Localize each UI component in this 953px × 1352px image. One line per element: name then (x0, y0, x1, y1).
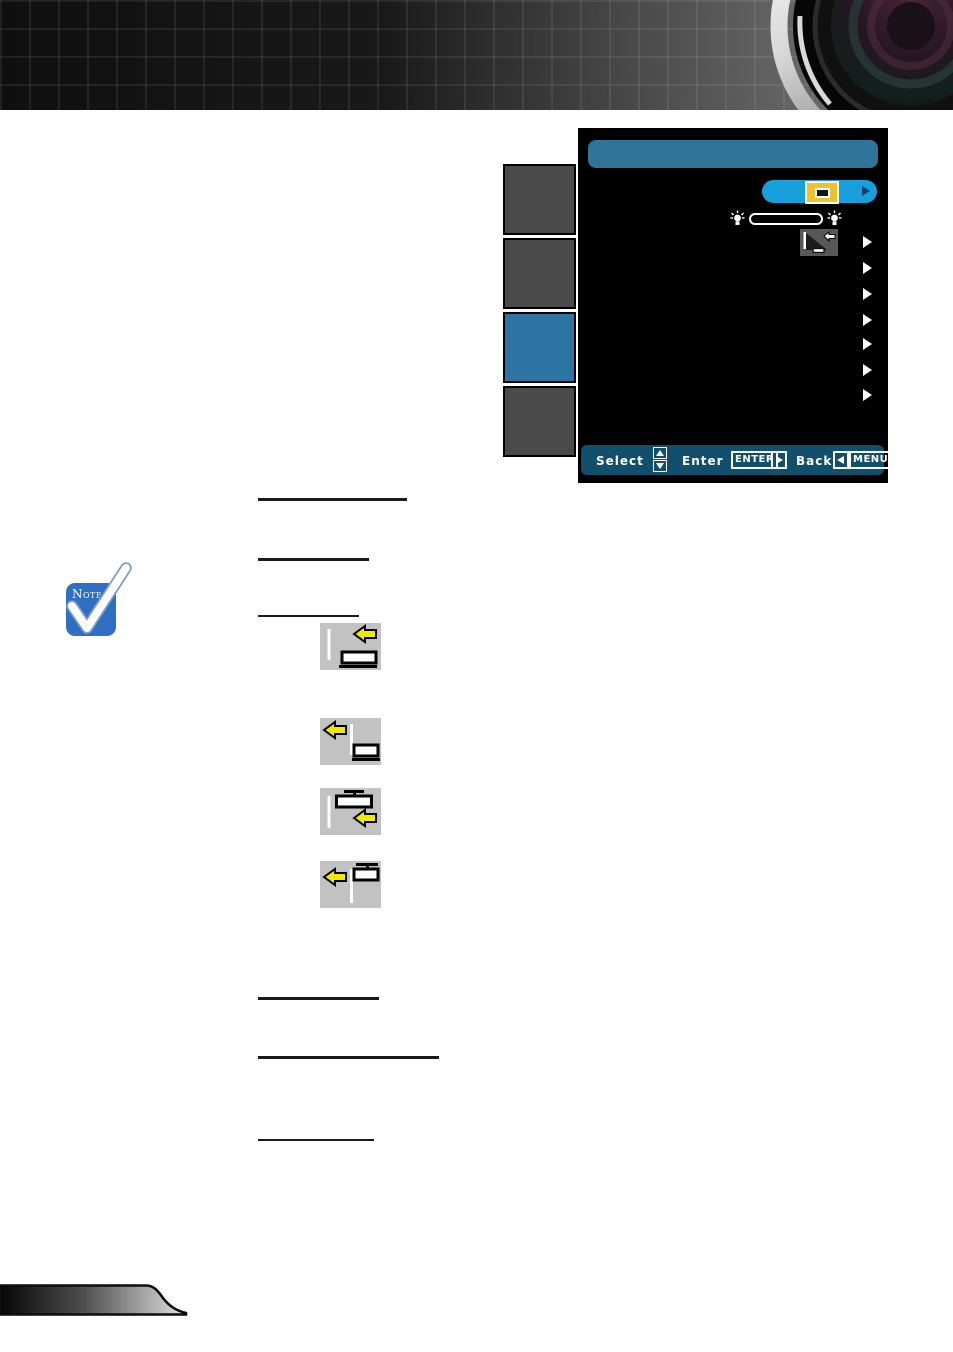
arrow-left-key-icon (833, 451, 849, 469)
arrow-right-key-icon (771, 451, 787, 469)
osd-row-arrow[interactable] (863, 338, 872, 350)
osd-row-arrow[interactable] (863, 364, 872, 376)
arrow-up-icon (656, 450, 664, 456)
sidebar-tab-2[interactable] (503, 238, 576, 309)
front-ceiling-icon (320, 788, 381, 835)
back-label: Back (796, 454, 832, 468)
page: Select Enter ENTER Back MENU Note (0, 0, 953, 1352)
heading-underline-3 (258, 615, 359, 617)
header-banner (0, 0, 953, 110)
osd-row-arrow[interactable] (863, 262, 872, 274)
projector-lens-icon (738, 0, 953, 110)
sidebar-tab-3-active[interactable] (503, 312, 576, 383)
front-desktop-icon (320, 623, 381, 670)
heading-underline-4 (258, 997, 379, 1000)
menu-location-icon (805, 181, 839, 204)
osd-row-highlighted[interactable] (762, 180, 877, 203)
heading-underline-2 (258, 558, 369, 561)
lamp-icon (730, 210, 745, 226)
rear-ceiling-icon (320, 861, 381, 908)
footer-swoosh (0, 1283, 190, 1319)
osd-title-bar (588, 140, 878, 168)
sidebar-tab-1[interactable] (503, 164, 576, 235)
osd-sidebar (503, 164, 578, 460)
arrow-down-icon (656, 463, 664, 469)
projection-mode-icon (800, 229, 838, 256)
osd-row-arrow[interactable] (863, 389, 872, 401)
osd-panel: Select Enter ENTER Back MENU (578, 128, 888, 483)
heading-underline-5 (258, 1056, 439, 1059)
updown-keys-icon (653, 447, 667, 472)
sidebar-tab-4[interactable] (503, 386, 576, 457)
menu-location-marker (815, 188, 830, 198)
heading-underline-1 (258, 498, 407, 501)
note-checkmark-icon (60, 560, 135, 645)
enter-label: Enter (682, 454, 724, 468)
osd-footer-bar: Select Enter ENTER Back MENU (581, 445, 884, 475)
osd-row-arrow[interactable] (863, 236, 872, 248)
osd-row-arrow[interactable] (863, 314, 872, 326)
rear-desktop-icon (320, 718, 381, 765)
brightness-slider[interactable] (749, 213, 823, 225)
lamp-icon (827, 210, 842, 226)
select-label: Select (596, 454, 644, 468)
heading-underline-6 (258, 1139, 374, 1141)
menu-key-badge: MENU (849, 451, 892, 469)
chevron-right-icon (862, 186, 870, 196)
osd-row-arrow[interactable] (863, 288, 872, 300)
